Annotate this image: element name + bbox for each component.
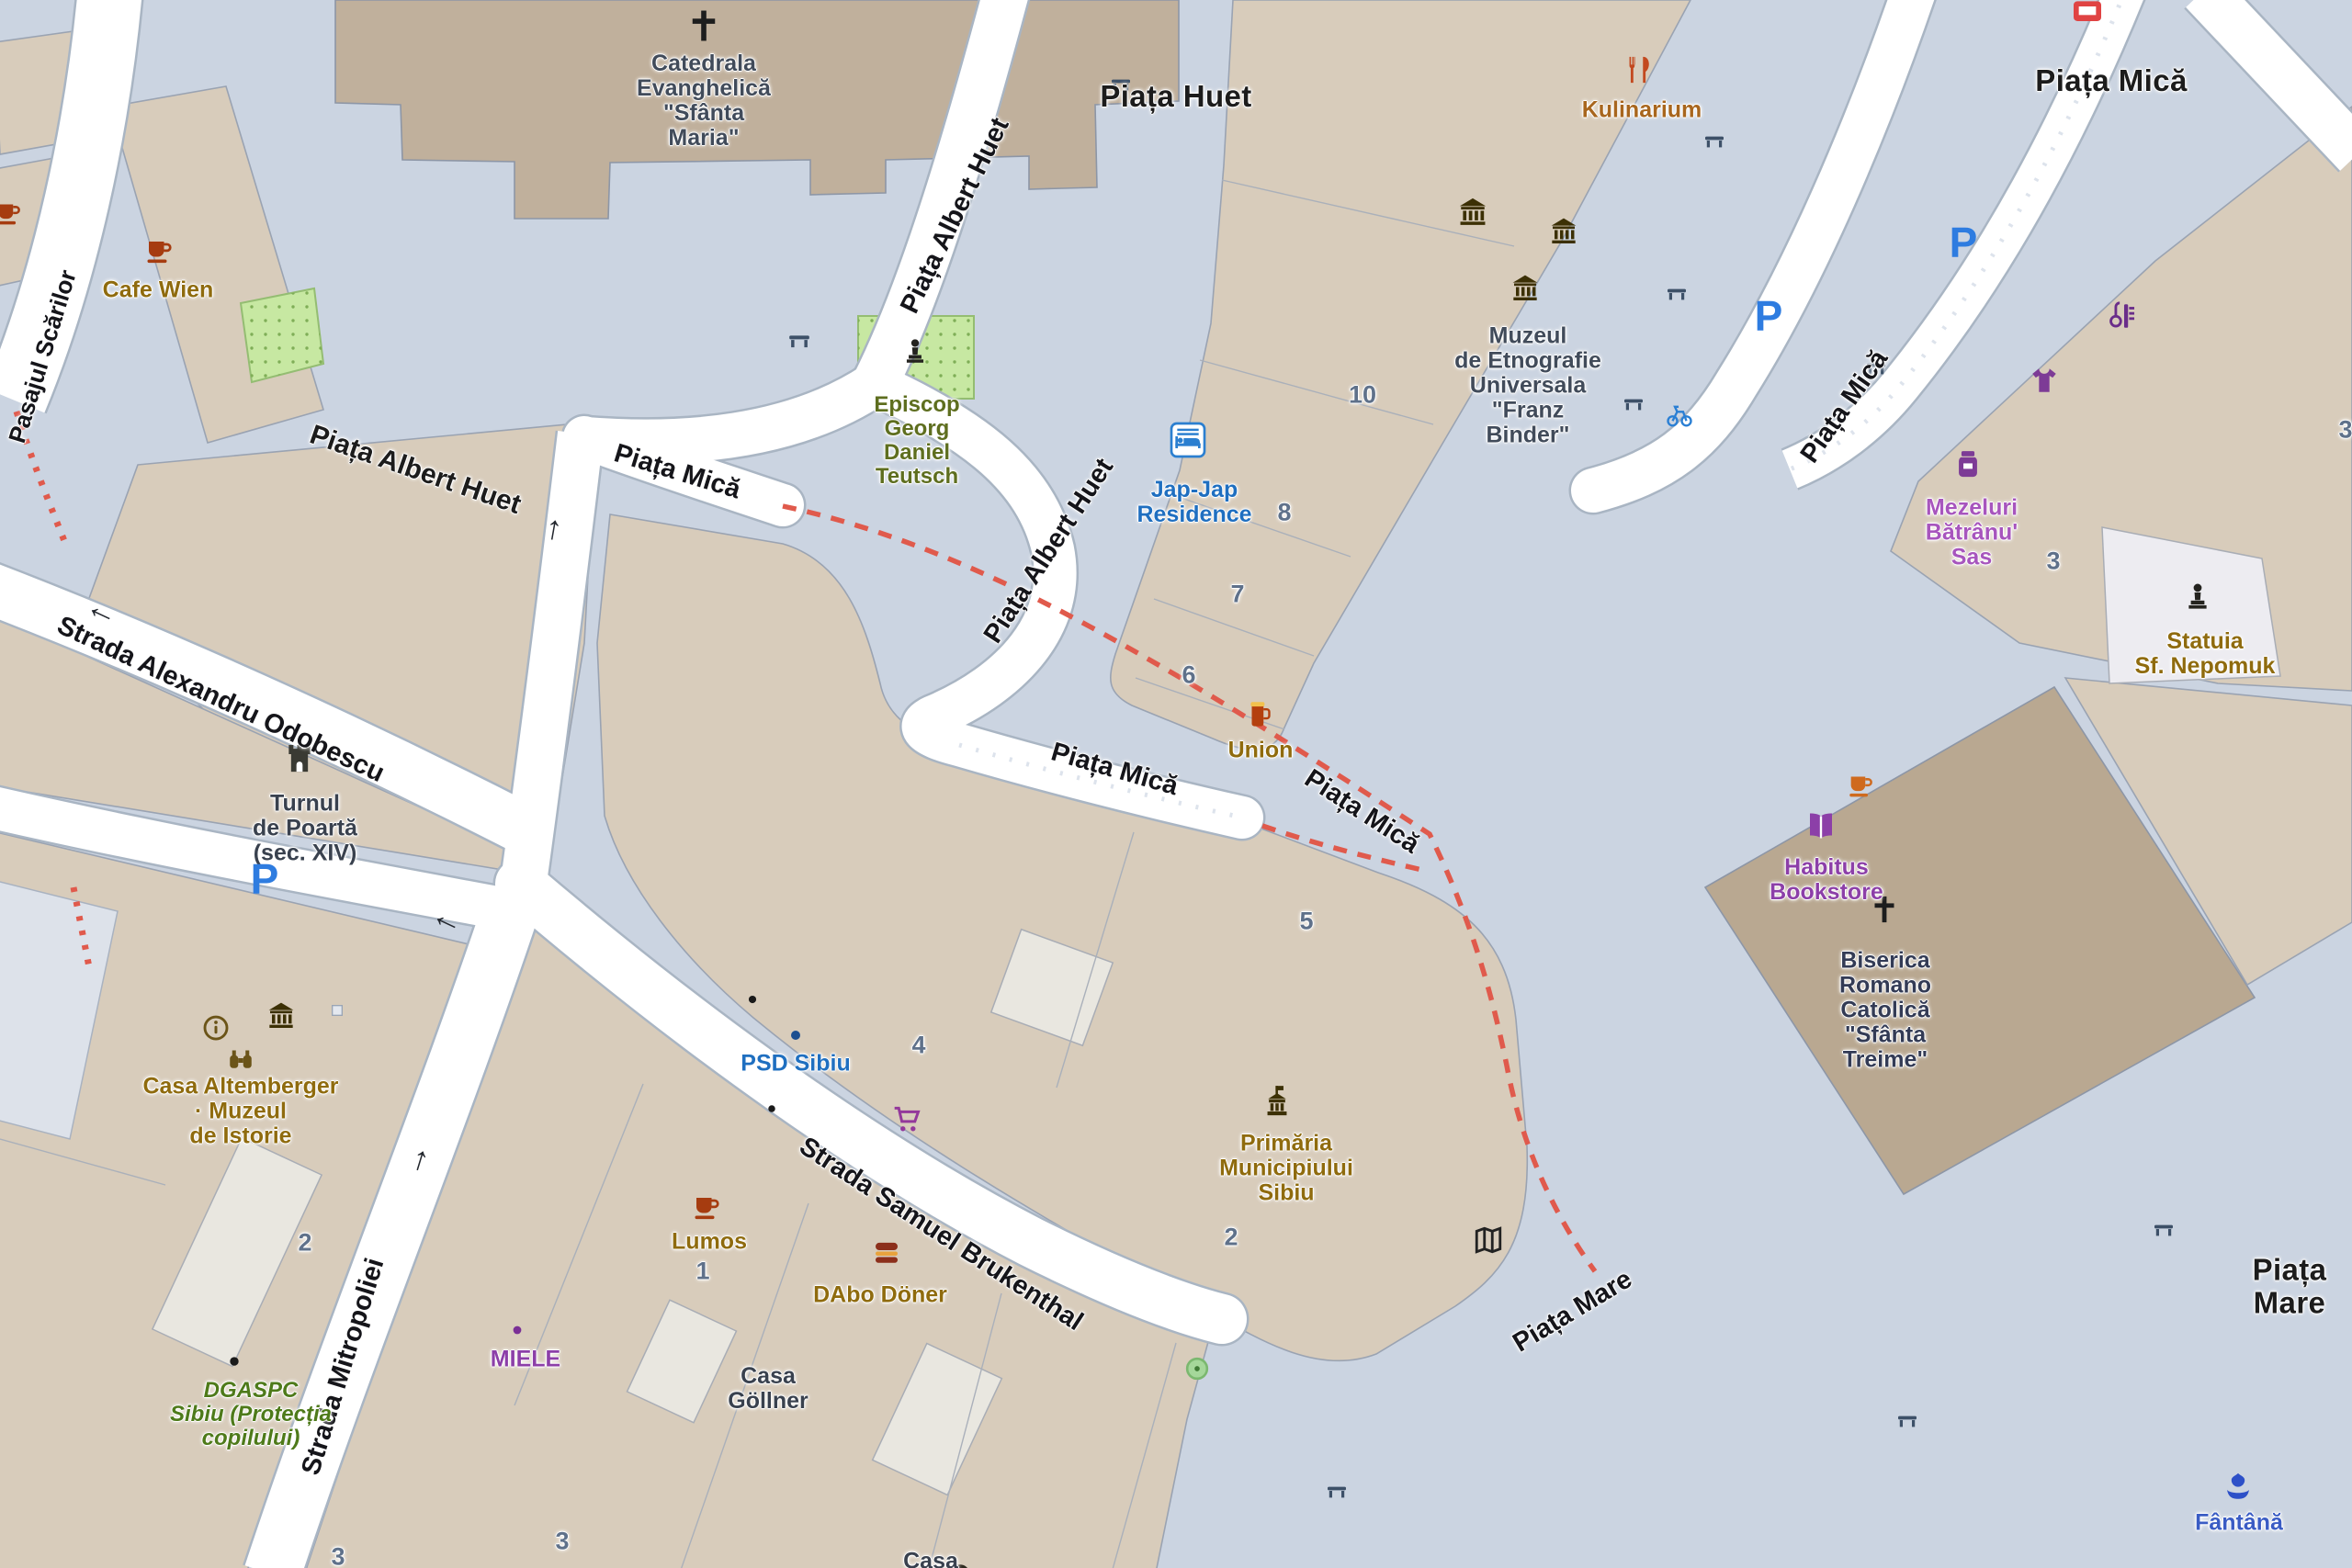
oneway-arrow-icon-4: ←	[538, 512, 580, 550]
deli-jar-icon[interactable]	[1952, 448, 1984, 479]
bench-icon-9	[1326, 1479, 1348, 1501]
cafe-icon-edge[interactable]	[0, 197, 25, 228]
poi-label-casa-altemberger[interactable]: Casa Altemberger · Muzeul de Istorie	[142, 1075, 338, 1149]
clothes-shop-icon[interactable]	[2029, 365, 2060, 396]
parking-icon-3[interactable]: P	[1950, 220, 1978, 266]
museum-icon-1[interactable]	[1457, 196, 1488, 227]
poi-label-casa-bottom[interactable]: Casa	[903, 1550, 958, 1568]
bench-icon-4	[1666, 281, 1688, 303]
poi-dot-icon-1	[747, 994, 759, 1006]
small-building-marker-icon	[330, 1003, 345, 1018]
museum-icon-2[interactable]	[1549, 216, 1578, 245]
poi-label-union[interactable]: Union	[1228, 739, 1294, 763]
house-number-6: 6	[1182, 661, 1195, 688]
plaza-label-piata-huet: Piața Huet	[1100, 80, 1251, 113]
poi-label-dabo-doner[interactable]: DAbo Döner	[813, 1283, 947, 1308]
poi-label-fantana[interactable]: Fântână	[2195, 1511, 2283, 1536]
bench-icon-1	[787, 327, 811, 351]
museum-icon-etnografie[interactable]	[1510, 273, 1540, 302]
house-number-7: 7	[1230, 581, 1244, 607]
townhall-icon[interactable]	[1260, 1083, 1295, 1118]
poi-label-dgaspc[interactable]: DGASPC Sibiu (Protecția copilului)	[170, 1379, 332, 1450]
church-cross-icon-catedrala[interactable]	[684, 6, 723, 45]
hotel-bed-icon[interactable]	[1170, 422, 1206, 458]
poi-label-episcop-teutsch[interactable]: Episcop Georg Daniel Teutsch	[874, 393, 959, 489]
plaza-label-piata-mica-ne: Piața Mică	[2035, 64, 2187, 97]
poi-dot-icon-2	[766, 1103, 777, 1114]
poi-label-miele[interactable]: MIELE	[491, 1348, 560, 1372]
poi-label-catedrala-evanghelica[interactable]: Catedrala Evanghelică "Sfânta Maria"	[637, 51, 771, 151]
house-number-5: 5	[1299, 908, 1313, 934]
cafe-wien-icon[interactable]	[143, 233, 176, 266]
fastfood-burger-icon[interactable]	[870, 1236, 903, 1269]
house-number-2a: 2	[1224, 1224, 1238, 1250]
cafe-icon-habitus[interactable]	[1846, 769, 1877, 800]
info-icon[interactable]	[202, 1014, 230, 1042]
map-board-icon[interactable]	[1473, 1224, 1504, 1256]
poi-label-lumos[interactable]: Lumos	[672, 1230, 747, 1255]
house-number-2b: 2	[298, 1229, 311, 1256]
house-number-3c: 3	[555, 1528, 569, 1554]
poi-label-primaria-sibiu[interactable]: Primăria Municipiului Sibiu	[1219, 1132, 1353, 1206]
poi-label-jap-jap-residence[interactable]: Jap-Jap Residence	[1136, 478, 1251, 527]
house-number-3d: 3	[2338, 416, 2352, 443]
miele-dot-icon	[511, 1324, 524, 1337]
parking-icon-1[interactable]: P	[251, 857, 279, 903]
bench-icon-8	[1896, 1408, 1918, 1430]
binoculars-icon[interactable]	[227, 1046, 254, 1074]
poi-label-biserica-sfanta-treime[interactable]: Biserica Romano Catolică "Sfânta Treime"	[1839, 949, 1931, 1073]
tree-icon	[1185, 1357, 1209, 1381]
lumos-cafe-icon[interactable]	[691, 1190, 724, 1223]
poi-label-habitus-bookstore[interactable]: Habitus Bookstore	[1770, 855, 1883, 905]
memorial-statue-icon-nepomuk[interactable]	[2182, 581, 2213, 612]
memorial-statue-icon-teutsch[interactable]	[900, 336, 930, 366]
poi-label-mezeluri-batranu-sas[interactable]: Mezeluri Bătrânu' Sas	[1926, 496, 2018, 570]
pub-beer-icon[interactable]	[1244, 698, 1275, 729]
house-number-10: 10	[1349, 381, 1376, 408]
clipped-poi-icon-top	[2069, 0, 2106, 26]
dgaspc-dot-icon	[228, 1355, 242, 1369]
bicycle-parking-icon[interactable]	[1666, 401, 1693, 429]
map-canvas[interactable]: Piața HuetPiața MicăPiața MarePiața Albe…	[0, 0, 2352, 1568]
bench-icon-5	[1623, 391, 1645, 413]
poi-label-muzeul-etnografie[interactable]: Muzeul de Etnografie Universala "Franz B…	[1454, 324, 1601, 448]
plaza-label-piata-mare: Piața Mare	[2253, 1253, 2327, 1318]
poi-label-kulinarium[interactable]: Kulinarium	[1582, 98, 1702, 123]
poi-label-cafe-wien[interactable]: Cafe Wien	[103, 278, 214, 303]
house-number-8: 8	[1277, 499, 1291, 525]
house-number-1: 1	[695, 1258, 709, 1284]
poi-label-casa-gollner[interactable]: Casa Göllner	[728, 1364, 808, 1414]
hairdresser-icon[interactable]	[2107, 300, 2138, 332]
house-number-3b: 3	[331, 1543, 345, 1568]
bench-icon-3	[1703, 129, 1725, 151]
psd-sibiu-dot-icon	[788, 1028, 803, 1043]
house-number-3a: 3	[2046, 547, 2060, 574]
fountain-icon[interactable]	[2222, 1470, 2255, 1503]
museum-icon-istorie[interactable]	[266, 1000, 296, 1030]
parking-icon-2[interactable]: P	[1755, 294, 1783, 340]
house-number-4: 4	[911, 1032, 925, 1058]
restaurant-icon[interactable]	[1625, 54, 1657, 85]
poi-label-psd-sibiu[interactable]: PSD Sibiu	[741, 1052, 850, 1077]
shopping-cart-icon[interactable]	[891, 1103, 922, 1134]
bench-icon-7	[2153, 1217, 2175, 1239]
poi-label-statuia-sf-nepomuk[interactable]: Statuia Sf. Nepomuk	[2135, 629, 2276, 679]
bookstore-icon[interactable]	[1804, 809, 1837, 842]
